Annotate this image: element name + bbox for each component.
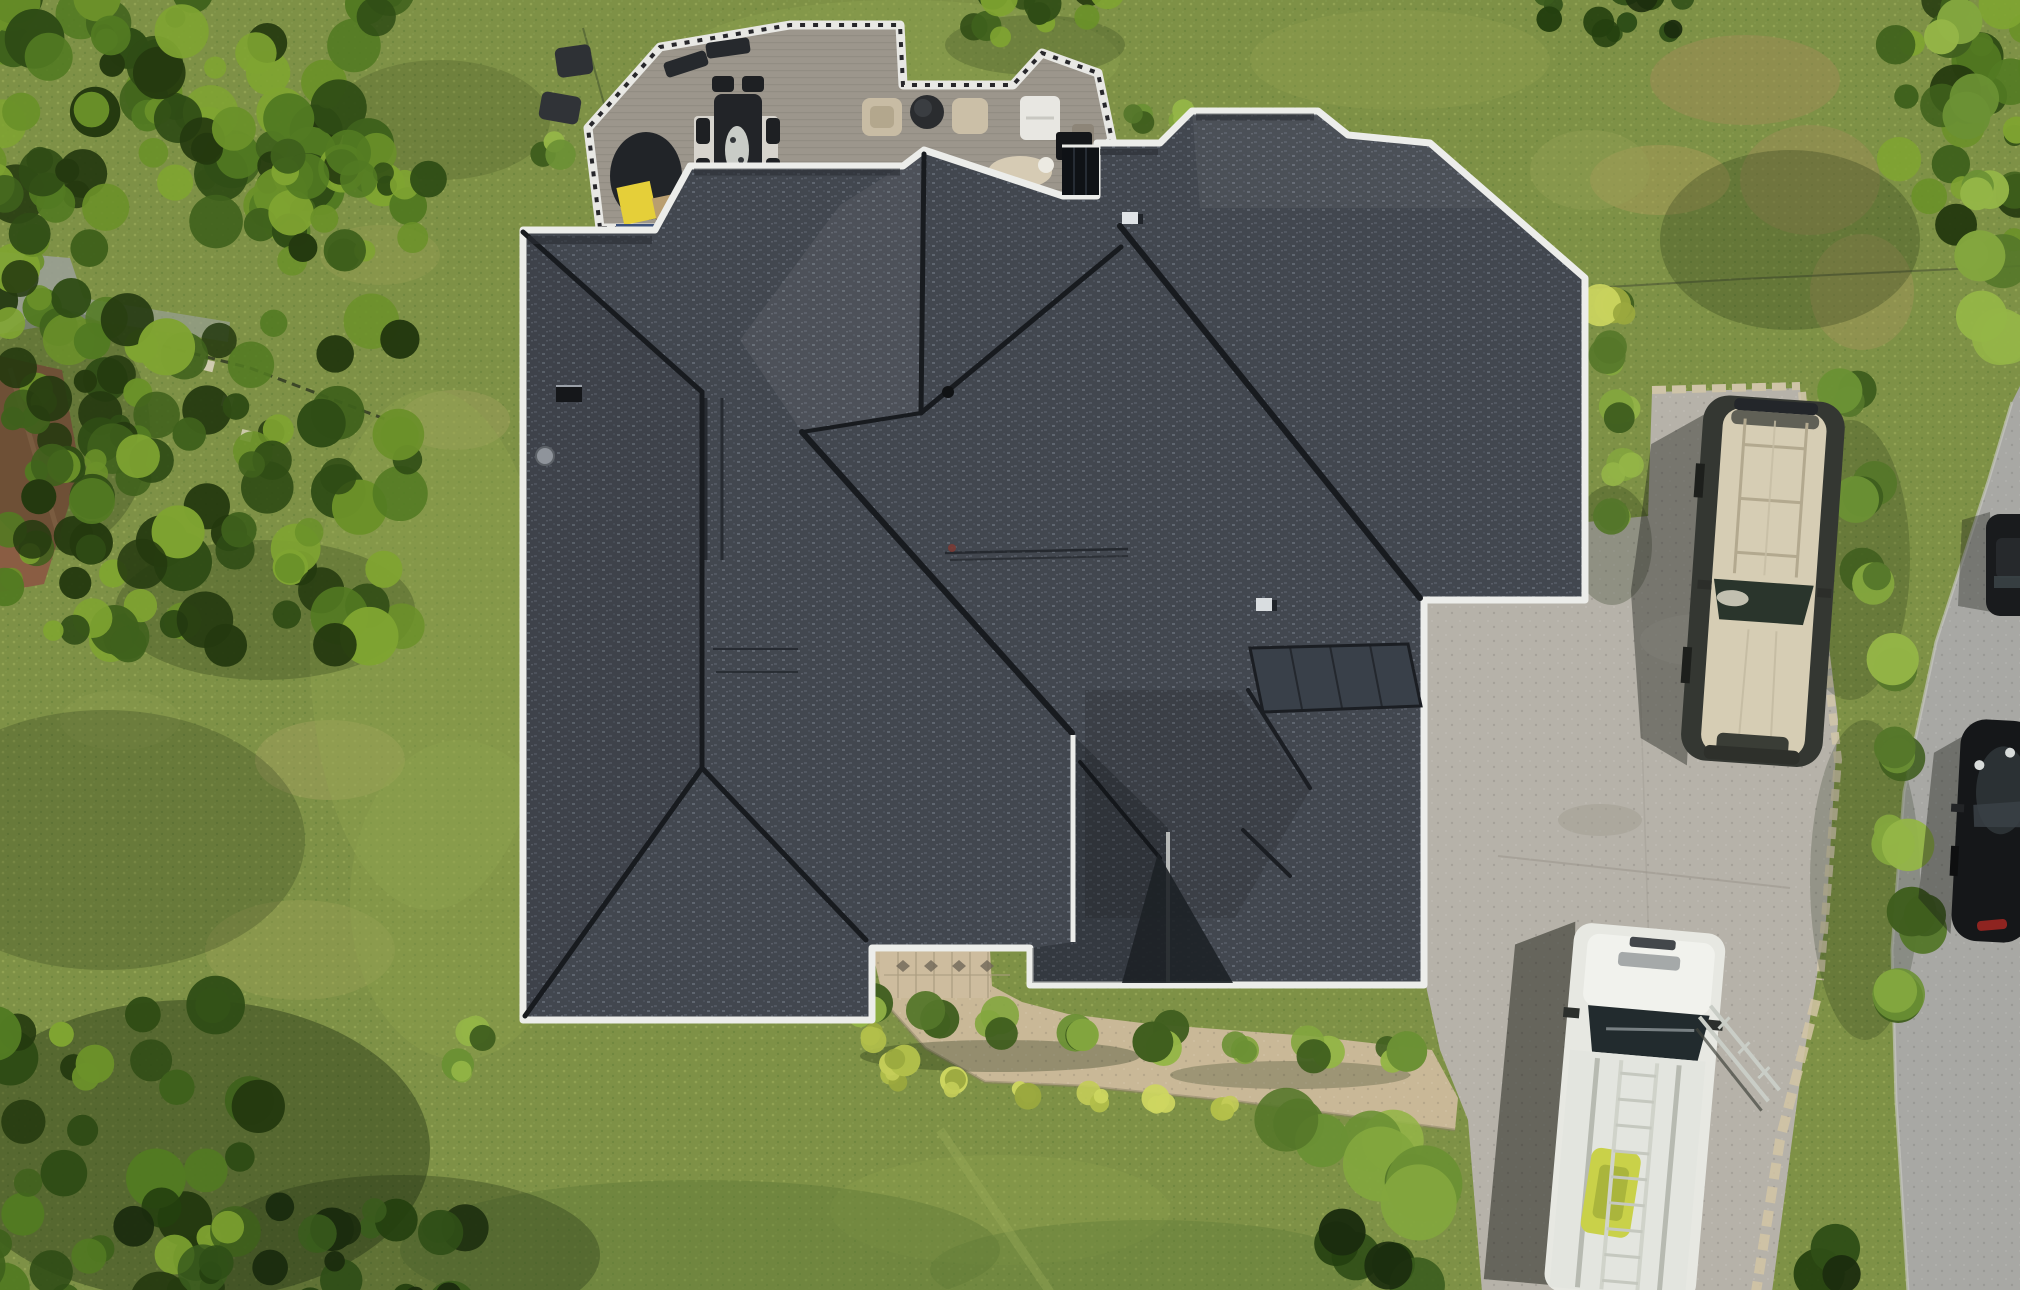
shrub [1132, 1021, 1173, 1062]
shrub [1874, 727, 1916, 769]
fire-table-top [914, 99, 932, 117]
cast-shadow [1170, 1061, 1410, 1089]
tan-suv [1619, 390, 1846, 775]
tree-foliage [157, 164, 193, 200]
tree-foliage [295, 518, 324, 547]
tree-foliage [70, 229, 108, 267]
shrub [1094, 1089, 1109, 1104]
lawn-patch [1530, 130, 1650, 210]
car-windshield [1994, 576, 2020, 588]
side-mirror [1817, 588, 1832, 598]
tree-foliage [2, 93, 40, 131]
tree-foliage [228, 342, 274, 388]
tree-foliage [362, 1198, 387, 1223]
tree-foliage [235, 32, 276, 73]
dining-chair [766, 118, 780, 144]
shrub [1613, 302, 1635, 324]
shrub [1297, 1039, 1331, 1073]
tree-foliage [1617, 12, 1637, 32]
tree-foliage [252, 1250, 288, 1286]
tree-foliage [1, 1193, 44, 1236]
tree-foliage [113, 1206, 154, 1247]
shrub [1015, 1083, 1042, 1110]
tree-foliage [1911, 178, 1947, 214]
white-vent [1122, 212, 1138, 224]
pipe-vent [942, 386, 954, 398]
tree-foliage [238, 451, 265, 478]
shrub [1924, 19, 1959, 54]
tree-foliage [223, 393, 250, 420]
tree-foliage [397, 222, 428, 253]
tree-foliage [373, 409, 425, 461]
shrub [545, 139, 575, 169]
wicker-chair [952, 98, 988, 134]
tree-foliage [212, 107, 256, 151]
tree-foliage [41, 1150, 88, 1197]
shrub [1319, 1209, 1366, 1256]
shrub [1601, 462, 1625, 486]
tree-foliage [298, 1214, 337, 1253]
shrub [1863, 562, 1891, 590]
shrub [1381, 1164, 1457, 1240]
tree-foliage [380, 320, 419, 359]
tree-foliage [76, 1045, 115, 1084]
shrub [861, 1027, 887, 1053]
red-marker [948, 544, 956, 552]
table-decor [738, 157, 744, 163]
cast-shadow [1660, 150, 1920, 330]
tree-foliage [67, 1115, 98, 1146]
tree-foliage [410, 161, 447, 198]
tree-foliage [1894, 84, 1918, 108]
car-roof [1996, 538, 2020, 578]
tree-foliage [9, 213, 51, 255]
shrub [1943, 92, 1991, 140]
tree-foliage [204, 624, 247, 667]
tree-foliage [273, 600, 301, 628]
tree-foliage [340, 160, 378, 198]
tree-foliage [14, 1169, 42, 1197]
adirondack-chair [554, 44, 594, 79]
tree-foliage [418, 1210, 463, 1255]
tree-foliage [288, 233, 317, 262]
aerial-photo-stage: Aerial top-down drone photograph of a la… [0, 0, 2020, 1290]
tree-foliage [59, 567, 91, 599]
shrub [985, 1017, 1018, 1050]
tree-foliage [74, 92, 110, 128]
tree-foliage [263, 93, 314, 144]
tree-foliage [275, 553, 305, 583]
tree-foliage [76, 535, 106, 565]
tree-foliage [1, 1100, 45, 1144]
clerestory-window-band [1062, 147, 1099, 195]
shrub [1066, 1019, 1098, 1051]
tree-foliage [260, 310, 287, 337]
tree-foliage [316, 335, 354, 373]
tree-foliage [373, 466, 428, 521]
dining-chair [712, 76, 734, 92]
tree-foliage [1876, 25, 1916, 65]
table-decor [730, 137, 736, 143]
tree-foliage [82, 184, 129, 231]
tree-foliage [310, 205, 338, 233]
tree-foliage [184, 1149, 228, 1193]
house-roof [523, 111, 1585, 1020]
shrub [906, 991, 945, 1030]
tree-foliage [55, 159, 79, 183]
tree-foliage [71, 1239, 106, 1274]
tree-foliage [125, 997, 161, 1033]
lawn-patch [1650, 35, 1840, 125]
tree-foliage [189, 195, 243, 249]
shrub [1386, 1031, 1427, 1072]
shrub [1867, 633, 1919, 685]
shrub [1222, 1031, 1249, 1058]
tree-foliage [324, 1251, 345, 1272]
shrub [1123, 104, 1142, 123]
shrub [1874, 969, 1918, 1013]
shrub [1954, 230, 2005, 281]
tree-foliage [116, 434, 160, 478]
tree-foliage [159, 1070, 194, 1105]
tree-foliage [211, 1211, 244, 1244]
shrub [1218, 1104, 1234, 1120]
chair-cushion [870, 106, 894, 128]
shrub [1588, 337, 1625, 374]
tree-foliage [60, 615, 90, 645]
shrub [1960, 177, 1993, 210]
tree-foliage [990, 26, 1011, 47]
aerial-photo [0, 0, 2020, 1290]
car-wheel [1950, 846, 1960, 876]
tree-foliage [271, 139, 306, 174]
tree-foliage [139, 138, 169, 168]
tree-foliage [1028, 2, 1051, 25]
tree-foliage [1877, 137, 1921, 181]
shrub [1604, 402, 1635, 433]
roof-vent [556, 386, 582, 402]
vent-shadow [1272, 600, 1277, 611]
tree-foliage [91, 16, 131, 56]
white-vent [1256, 598, 1272, 611]
tree-foliage [199, 1245, 234, 1280]
tree-foliage [232, 1080, 285, 1133]
shrub [1593, 498, 1630, 535]
tree-foliage [1074, 4, 1099, 29]
round-vent [536, 447, 554, 465]
shrub [451, 1061, 471, 1081]
shrub [470, 1025, 496, 1051]
shrub [1364, 1242, 1412, 1290]
side-mirror [1697, 580, 1712, 590]
vent-shadow [1138, 214, 1143, 224]
tree-foliage [221, 512, 256, 547]
tree-foliage [43, 620, 64, 641]
side-mirror [1563, 1007, 1580, 1018]
tree-foliage [26, 376, 72, 422]
driveway-stain [1558, 804, 1642, 836]
tree-foliage [110, 626, 147, 663]
tree-foliage [13, 520, 52, 559]
tree-foliage [1536, 6, 1562, 32]
tree-foliage [324, 229, 366, 271]
tree-foliage [266, 1193, 295, 1222]
tree-foliage [2, 260, 39, 297]
tree-foliage [51, 278, 91, 318]
white-pillow [1038, 157, 1054, 173]
shrub [1156, 1093, 1176, 1113]
gable-ridge [921, 154, 924, 413]
side-mirror [1951, 804, 1964, 813]
shrub [1956, 291, 2007, 342]
tree-foliage [320, 458, 357, 495]
tree-foliage [74, 370, 97, 393]
tree-foliage [297, 399, 346, 448]
tree-foliage [117, 539, 167, 589]
tree-foliage [69, 478, 115, 524]
tree-foliage [313, 623, 357, 667]
tree-foliage [172, 417, 206, 451]
lawn-patch [1250, 10, 1550, 110]
tree-foliage [84, 449, 106, 471]
tree-foliage [21, 479, 56, 514]
shrub [884, 1049, 905, 1070]
dark-car-upper [1958, 512, 2020, 616]
tree-foliage [365, 551, 402, 588]
tree-foliage [186, 976, 245, 1035]
tree-foliage [1592, 19, 1620, 47]
shrub [1254, 1088, 1318, 1152]
tree-foliage [138, 318, 195, 375]
tree-foliage [49, 1022, 74, 1047]
tree-foliage [25, 33, 73, 81]
dining-chair [742, 76, 764, 92]
tree-foliage [155, 4, 209, 58]
tree-foliage [225, 1142, 255, 1172]
shrub [944, 1082, 960, 1098]
tree-foliage [1664, 20, 1683, 39]
tree-foliage [204, 56, 226, 78]
tree-foliage [1, 407, 24, 430]
dining-chair [696, 118, 710, 144]
